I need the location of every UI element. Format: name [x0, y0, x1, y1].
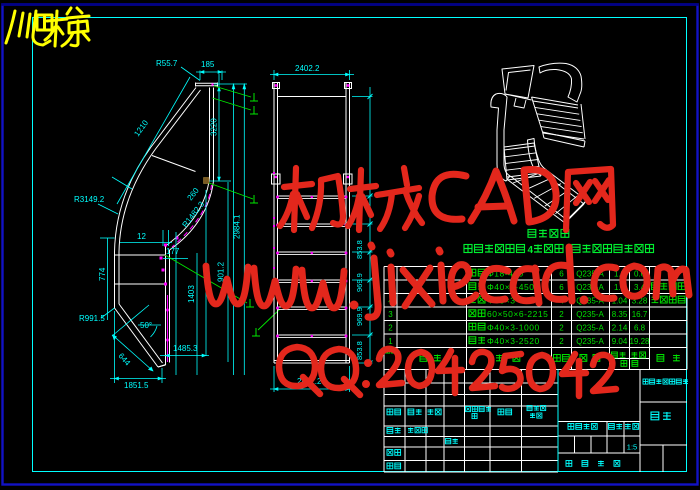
svg-text:3220: 3220	[210, 118, 219, 136]
svg-text:774: 774	[98, 267, 107, 281]
svg-text:8.35: 8.35	[612, 310, 628, 319]
svg-text:969.9: 969.9	[355, 273, 364, 292]
svg-text:2: 2	[559, 323, 564, 332]
svg-text:9.04: 9.04	[612, 337, 628, 346]
svg-text:177: 177	[166, 247, 180, 256]
svg-text:853.8: 853.8	[355, 240, 364, 259]
svg-text:Φ40×3-1000: Φ40×3-1000	[487, 322, 540, 332]
svg-text:1851.5: 1851.5	[124, 381, 149, 390]
svg-text:2.14: 2.14	[612, 323, 628, 332]
svg-text:2: 2	[559, 337, 564, 346]
svg-text:3: 3	[388, 310, 393, 319]
svg-text:Q235-A: Q235-A	[576, 323, 604, 332]
svg-text:19.28: 19.28	[629, 337, 650, 346]
svg-text:6: 6	[559, 283, 564, 292]
svg-text:1: 1	[388, 337, 393, 346]
svg-text:1403: 1403	[187, 285, 196, 303]
svg-text:2402.2: 2402.2	[295, 64, 320, 73]
svg-text:60×50×6-2215: 60×50×6-2215	[487, 309, 548, 319]
svg-text:185: 185	[201, 60, 215, 69]
svg-text:969.9: 969.9	[355, 307, 364, 326]
svg-text:2: 2	[559, 310, 564, 319]
svg-text:R991.5: R991.5	[79, 314, 105, 323]
svg-text:1:5: 1:5	[627, 443, 637, 452]
svg-text:16.7: 16.7	[632, 310, 648, 319]
svg-text:4: 4	[528, 245, 534, 256]
svg-text:1485.3: 1485.3	[173, 344, 198, 353]
svg-text:50°: 50°	[140, 321, 152, 330]
svg-text:Q235-A: Q235-A	[576, 283, 604, 292]
svg-text:6: 6	[559, 269, 564, 278]
svg-text:6.8: 6.8	[634, 323, 646, 332]
svg-text:R3149.2: R3149.2	[74, 195, 105, 204]
svg-text:12: 12	[137, 232, 146, 241]
svg-text:R55.7: R55.7	[156, 59, 178, 68]
svg-text:2: 2	[388, 323, 393, 332]
svg-text:Q235-A: Q235-A	[576, 310, 604, 319]
svg-text:Φ40×3-2520: Φ40×3-2520	[487, 336, 540, 346]
svg-text:Q235-A: Q235-A	[576, 337, 604, 346]
